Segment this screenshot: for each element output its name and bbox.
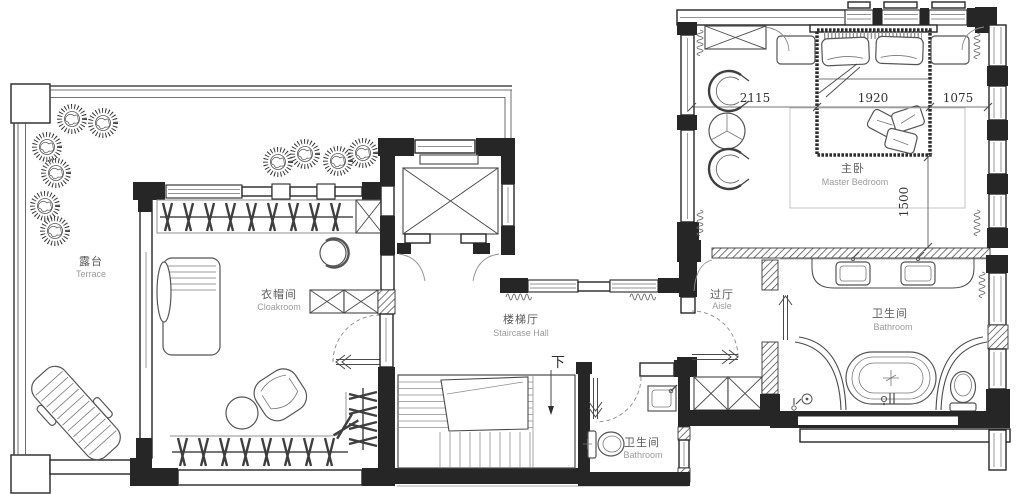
shower-fixtures — [792, 394, 812, 410]
dim-1500: 1500 — [897, 187, 911, 218]
stair-bathroom-door — [589, 377, 641, 422]
window-pier — [987, 228, 1008, 248]
curved-partition-left — [795, 337, 846, 410]
wall-block — [677, 115, 697, 130]
wall-window — [989, 430, 1006, 470]
cloakroom-window — [166, 185, 242, 198]
wall-segment — [640, 363, 674, 376]
cloakroom-label-en: Cloakroom — [257, 302, 301, 312]
cloakroom-south-wall — [178, 470, 362, 485]
terrace-label-en: Terrace — [76, 269, 106, 279]
nightstand-right — [931, 36, 969, 64]
hatched-wall — [762, 342, 778, 394]
window-pier — [987, 174, 1008, 194]
daybed — [157, 258, 220, 355]
curtain-coil — [974, 210, 980, 236]
wall-block — [677, 240, 701, 262]
wall-window — [989, 140, 1006, 174]
wall-block — [500, 278, 528, 293]
wall-block — [690, 410, 770, 426]
window-sill — [932, 2, 965, 8]
dim-1075: 1075 — [943, 91, 974, 105]
wall-block — [473, 243, 490, 254]
wall-block — [501, 138, 515, 184]
wall-block — [138, 200, 152, 212]
wall-block — [678, 377, 690, 427]
wall-block — [380, 216, 395, 255]
clothes-rack-top — [157, 200, 382, 233]
lounge-chairs — [709, 71, 749, 189]
master-bedroom-room: 2115 1920 1075 1500 主卧 Master Bedroom — [677, 2, 1008, 251]
curtain-coil — [506, 294, 532, 300]
wall-block — [986, 255, 1008, 273]
dim-1920: 1920 — [858, 91, 889, 105]
aisle-label-zh: 过厅 — [710, 288, 734, 301]
window-pier — [873, 8, 882, 27]
stair-down-label: 下 — [551, 354, 565, 370]
wall-block — [380, 156, 395, 186]
aisle-cabinets — [690, 377, 770, 426]
wall-segment — [381, 255, 394, 290]
window-sill — [848, 2, 870, 8]
master-bedroom-label-zh: 主卧 — [841, 162, 865, 175]
master-bathroom-room: 卫生间 Bathroom — [712, 248, 1010, 470]
hall-window — [610, 280, 658, 292]
wall-block — [501, 226, 515, 255]
aisle-door — [692, 311, 738, 364]
cloakroom-window-small — [272, 184, 290, 199]
dimension-line-vertical: 1500 — [897, 153, 932, 251]
bedroom-window — [882, 10, 920, 25]
wall-block — [658, 278, 679, 293]
curtain-coil — [979, 272, 985, 298]
wall-block — [378, 138, 414, 156]
curtain-coil — [697, 30, 703, 56]
terrace-corner-column-bottom — [11, 455, 50, 493]
wall-window — [989, 349, 1006, 389]
window-pier — [987, 120, 1008, 140]
wall-block — [138, 468, 178, 486]
wall-block — [362, 468, 395, 486]
nightstand-left — [777, 36, 815, 64]
window-pier — [967, 8, 976, 27]
hatched-wall — [378, 290, 395, 314]
cloakroom-wall-segment — [242, 187, 272, 196]
floor-plan-canvas: 露台 Terrace — [0, 0, 1024, 494]
terrace-label-zh: 露台 — [79, 254, 103, 268]
wall-block — [677, 22, 697, 35]
blanket-fold — [819, 64, 860, 97]
stair-bathroom-label-en: Bathroom — [623, 450, 662, 460]
cloakroom-room: 衣帽间 Cloakroom — [133, 182, 395, 486]
terrace-corner-column-top — [11, 84, 50, 123]
bed — [810, 25, 937, 155]
wall-block — [378, 367, 395, 468]
elevator-door-jamb — [405, 234, 430, 243]
curtain-coil — [974, 33, 980, 59]
elevator-counterweight — [420, 155, 478, 164]
aisle-room: 过厅 Aisle — [677, 240, 770, 426]
cloakroom-door — [333, 315, 380, 369]
staircase-hall-label-zh: 楼梯厅 — [503, 312, 539, 326]
wall-segment — [578, 282, 610, 291]
wardrobe — [705, 26, 766, 49]
master-bedroom-label-en: Master Bedroom — [822, 177, 889, 187]
wall-block — [578, 472, 690, 486]
sun-lounger — [21, 356, 131, 469]
stair-bathroom-label-zh: 卫生间 — [624, 435, 660, 449]
decor-pillows — [866, 105, 925, 154]
pillow-left — [821, 37, 869, 66]
cloakroom-wall-block — [133, 182, 165, 200]
hatched-wall — [988, 325, 1008, 349]
staircase — [398, 375, 575, 468]
wall-window — [989, 194, 1006, 228]
vanity-chair — [320, 239, 349, 268]
wall-block — [986, 389, 1010, 411]
hatched-wall-north — [712, 248, 990, 258]
curtain-coil — [630, 294, 656, 300]
bedroom-window — [845, 10, 873, 25]
wall-block — [679, 262, 697, 297]
wall-segment — [381, 186, 394, 216]
bedroom-window — [929, 10, 967, 25]
wall-window — [989, 273, 1006, 325]
hatched-wall — [762, 260, 778, 290]
wall-inset — [798, 417, 958, 426]
hall-window — [528, 280, 578, 292]
master-bathroom-label-zh: 卫生间 — [872, 306, 908, 320]
dim-2115: 2115 — [740, 91, 771, 105]
sink — [648, 385, 677, 411]
cloakroom-wall-segment — [290, 187, 317, 196]
terrace-shrubs — [33, 107, 376, 244]
ottoman — [226, 397, 258, 429]
window-pier — [920, 8, 929, 27]
cloakroom-wall-segment — [335, 187, 362, 196]
master-bathroom-door — [779, 295, 792, 340]
wall-segment — [380, 314, 393, 367]
window-sill — [884, 2, 917, 8]
stair-bathroom-room: 卫生间 Bathroom — [576, 360, 690, 486]
wall-block — [397, 243, 411, 254]
wall-block — [395, 468, 588, 484]
hatched-wall — [678, 427, 690, 440]
master-bathroom-label-en: Bathroom — [873, 322, 912, 332]
elevator-door-jamb — [461, 234, 486, 243]
exterior-ledge — [800, 429, 1010, 442]
stair-break-symbol — [441, 377, 528, 431]
elevator-door-swing — [399, 254, 499, 281]
elevator-shaft — [378, 138, 515, 281]
aisle-label-en: Aisle — [712, 301, 732, 311]
cloakroom-window-small — [317, 184, 335, 199]
wall-block — [136, 438, 152, 458]
toilet-master — [950, 372, 976, 412]
staircase-hall-label-en: Staircase Hall — [493, 328, 549, 338]
window-pier — [987, 66, 1008, 86]
toilet — [583, 431, 624, 458]
terrace-parapet-wall — [50, 460, 132, 474]
wall-block — [677, 222, 699, 242]
wall-window — [989, 25, 1006, 66]
floor-plan-drawing: 露台 Terrace — [0, 0, 1024, 494]
bathtub — [846, 352, 936, 405]
pillow-right — [876, 36, 924, 65]
cloakroom-label-zh: 衣帽间 — [261, 287, 297, 301]
wall-block — [760, 394, 780, 412]
